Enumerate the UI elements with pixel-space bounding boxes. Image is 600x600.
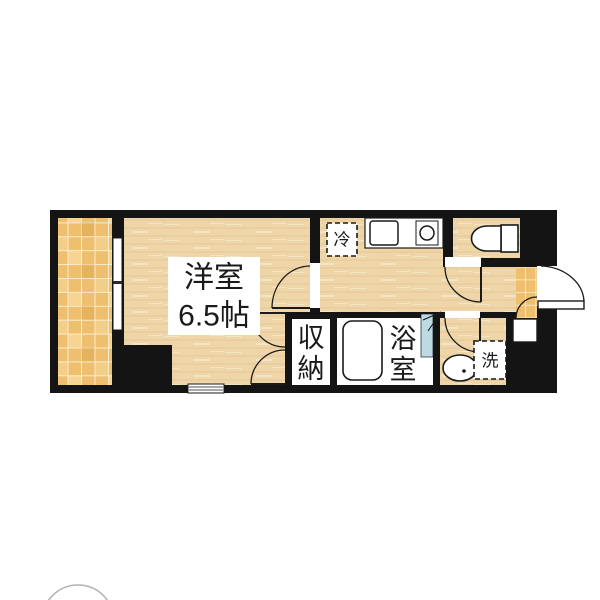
- toilet-tank: [501, 225, 518, 252]
- washbasin-icon: [443, 355, 477, 381]
- stove-burner-icon: [420, 226, 434, 240]
- refrigerator-label: 冷: [334, 231, 351, 250]
- balcony-window: [113, 238, 122, 330]
- washbasin-drain: [462, 369, 466, 373]
- bathtub-icon: [343, 321, 382, 380]
- entrance-door-opening: [537, 266, 557, 306]
- main-room-door-opening: [310, 263, 320, 308]
- refrigerator-space: 冷: [327, 223, 357, 256]
- balcony-floor-shading: [58, 218, 112, 385]
- closet-label-char-1: 収: [298, 323, 325, 353]
- entrance-door-leaf: [538, 301, 584, 309]
- kitchen-sink-icon: [370, 221, 398, 245]
- toilet-door-opening: [445, 257, 481, 267]
- watermark-circle: [42, 585, 114, 600]
- washer-space: 洗: [474, 341, 506, 379]
- floorplan-svg: 洋室 6.5帖 収 納 浴 室 冷 洗: [0, 0, 600, 600]
- bathroom-label-char-2: 室: [390, 355, 417, 385]
- washbasin-bowl: [443, 355, 477, 381]
- toilet-icon: [471, 225, 518, 252]
- shoe-cabinet: [513, 319, 537, 342]
- toilet-bowl: [471, 226, 501, 251]
- kitchen-unit: [365, 218, 443, 248]
- main-room-size-label: 6.5帖: [178, 300, 250, 333]
- main-room-name-label: 洋室: [184, 262, 244, 295]
- bathroom-label-char-1: 浴: [390, 324, 417, 354]
- entrance-tile: [516, 267, 537, 318]
- bottom-window-glass: [188, 384, 224, 393]
- pillar: [124, 345, 172, 385]
- bottom-window: [188, 384, 224, 393]
- balcony: [58, 218, 112, 385]
- washroom-door-opening: [445, 311, 480, 318]
- closet-label-char-2: 納: [298, 354, 325, 384]
- washer-label: 洗: [482, 352, 499, 371]
- closet-label: 収 納: [298, 323, 325, 384]
- bathroom-door-panel: [421, 314, 433, 357]
- balcony-window-divider: [113, 281, 122, 284]
- bathroom-label: 浴 室: [390, 324, 417, 385]
